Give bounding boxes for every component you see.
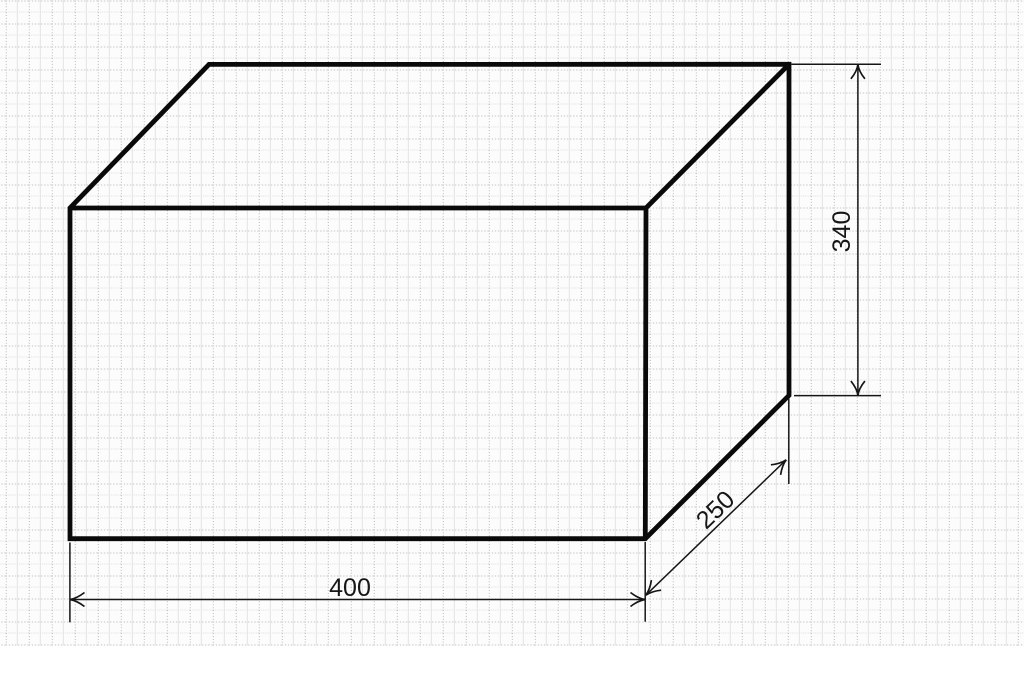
svg-text:400: 400: [329, 574, 371, 602]
svg-text:340: 340: [828, 211, 856, 253]
